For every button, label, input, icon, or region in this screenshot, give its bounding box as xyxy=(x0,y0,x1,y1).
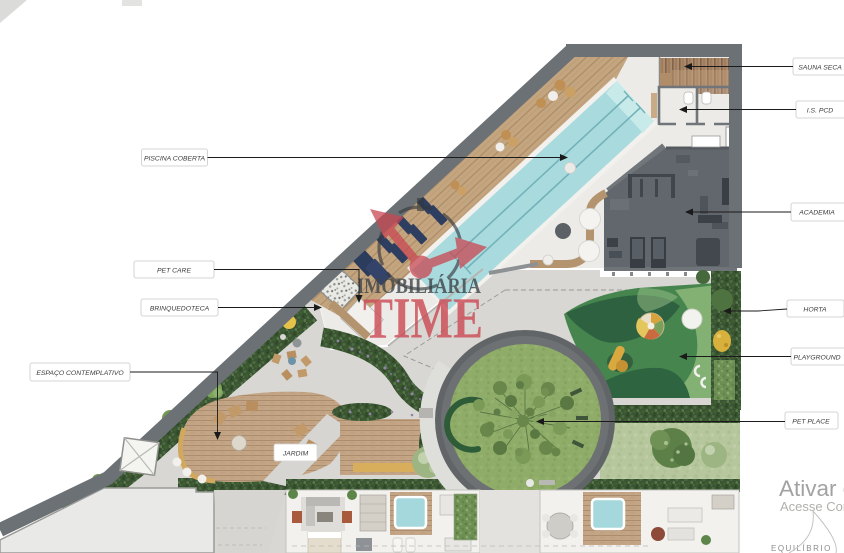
svg-text:ESPAÇO CONTEMPLATIVO: ESPAÇO CONTEMPLATIVO xyxy=(36,370,124,377)
svg-text:PISCINA COBERTA: PISCINA COBERTA xyxy=(144,156,206,163)
svg-text:Acesse Confi: Acesse Confi xyxy=(780,499,844,514)
svg-text:PLAYGROUND: PLAYGROUND xyxy=(793,355,840,362)
svg-text:PET CARE: PET CARE xyxy=(157,268,191,275)
svg-text:EQUILÍBRIO: EQUILÍBRIO xyxy=(771,544,832,553)
svg-text:JARDIM: JARDIM xyxy=(282,451,309,458)
svg-text:I.S. PCD: I.S. PCD xyxy=(807,108,834,115)
svg-text:ACADEMIA: ACADEMIA xyxy=(798,210,835,217)
svg-text:BRINQUEDOTECA: BRINQUEDOTECA xyxy=(150,306,210,313)
svg-text:PET PLACE: PET PLACE xyxy=(792,419,830,426)
svg-text:Ativar o W: Ativar o W xyxy=(779,476,844,501)
svg-text:HORTA: HORTA xyxy=(803,307,827,314)
svg-text:SAUNA SECA: SAUNA SECA xyxy=(798,65,842,72)
svg-text:TIME: TIME xyxy=(363,286,483,351)
